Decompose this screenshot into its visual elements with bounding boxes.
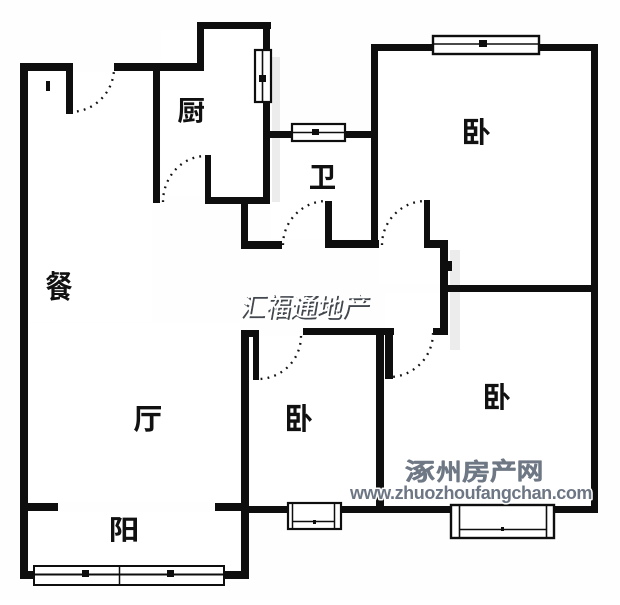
svg-text:www.zhuozhoufangchan.com: www.zhuozhoufangchan.com [349,483,592,503]
